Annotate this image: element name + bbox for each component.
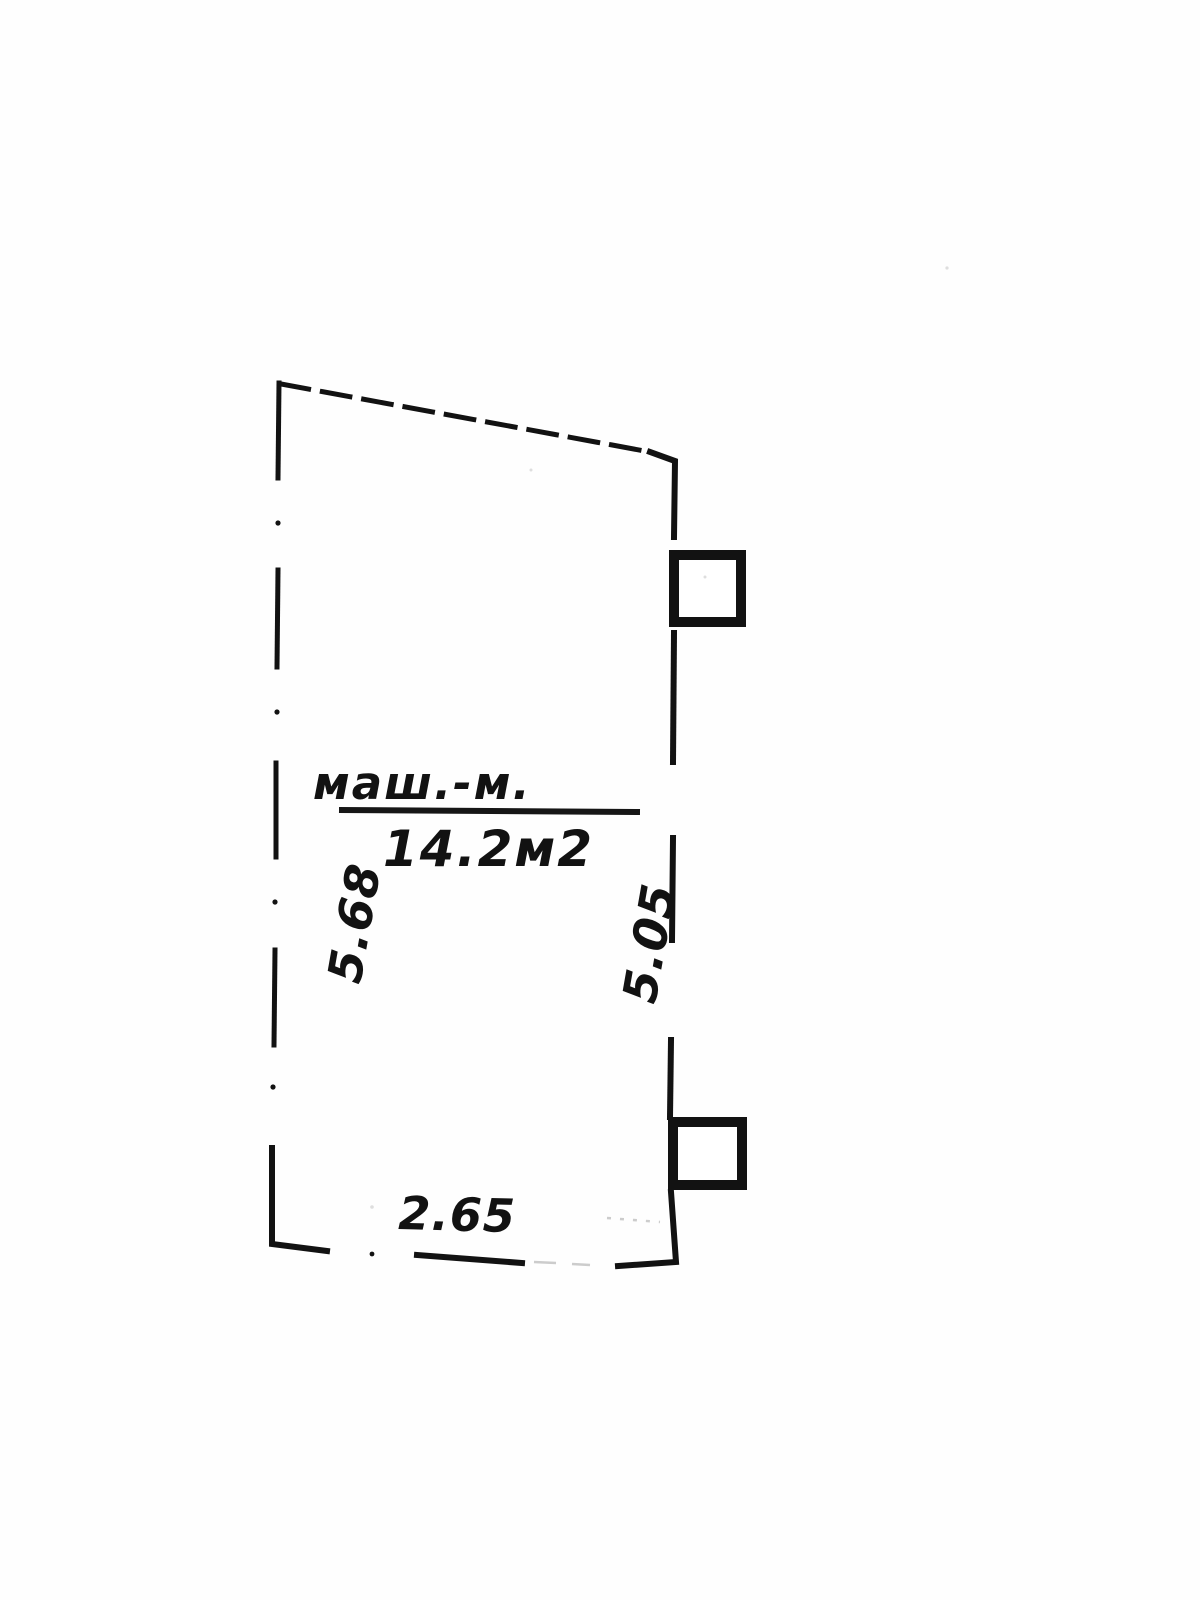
dimension-bottom: 2.65 [398,1186,517,1243]
left-wall-dot-1 [275,520,280,525]
left-wall-segment-4 [274,950,275,1045]
bottom-wall-middle-segment [417,1255,522,1263]
faint-dash-3 [607,1218,660,1222]
dimension-right: 5.05 [613,879,688,1007]
room-type-label: маш.-м. [313,757,532,810]
scan-speck-5 [704,576,707,579]
right-wall-segment-1 [673,633,674,762]
label-divider-line [339,810,640,812]
top-wall-dashed-line [281,384,650,452]
scan-speck-2 [945,266,948,269]
left-wall-segment-2 [277,570,278,667]
faint-dash-1 [534,1262,556,1263]
room-area-label: 14.2м2 [383,820,594,878]
column-marker-bottom [673,1122,742,1185]
scan-speck-4 [530,469,533,472]
left-wall-dot-3 [272,899,277,904]
left-wall-dot-2 [274,709,279,714]
column-marker-top [674,555,741,622]
top-right-corner-line [650,452,675,537]
dimension-left: 5.68 [318,859,393,987]
bottom-wall-dot [370,1252,375,1257]
bottom-right-corner-line [618,1192,676,1266]
scan-speck-1 [370,1205,374,1209]
left-wall-dot-4 [270,1084,275,1089]
left-wall-segment-1 [278,383,279,478]
bottom-left-corner-line [272,1148,327,1251]
faint-dash-2 [572,1264,590,1265]
floor-plan-drawing: маш.-м. 14.2м2 5.68 5.05 2.65 [0,0,1200,1600]
right-wall-segment-3 [670,1040,671,1117]
floor-plan-page: маш.-м. 14.2м2 5.68 5.05 2.65 [0,0,1200,1600]
